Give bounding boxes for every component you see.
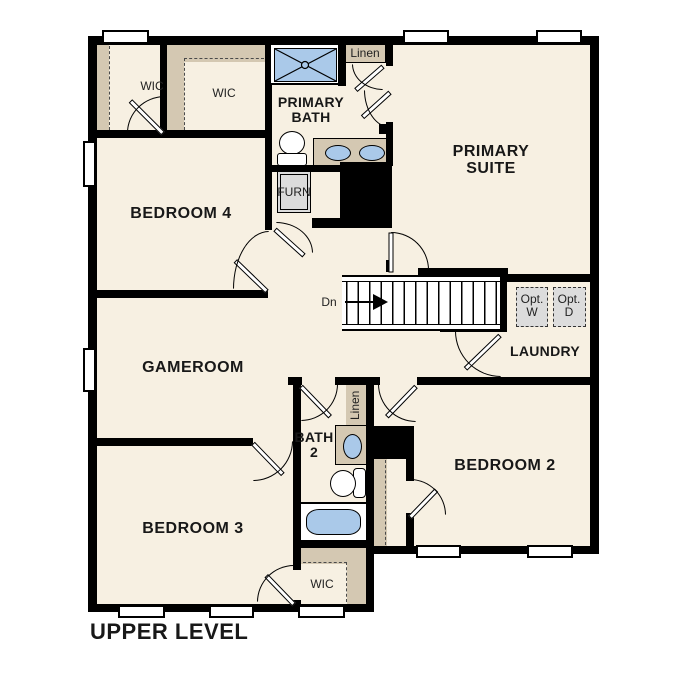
stairs-arrow-line xyxy=(345,301,375,303)
window-top-left xyxy=(102,30,149,44)
stairs-top-rail xyxy=(342,275,500,282)
wic1-rod-line xyxy=(109,46,110,130)
wall-lower-right xyxy=(366,540,374,612)
window-suite-1 xyxy=(403,30,449,44)
window-suite-2 xyxy=(536,30,582,44)
bedroom3-label: BEDROOM 3 xyxy=(133,520,253,537)
laundry-label: LAUNDRY xyxy=(505,344,585,359)
page-title: UPPER LEVEL xyxy=(90,620,330,644)
window-bedroom3-2 xyxy=(209,605,254,618)
wall-suite-left-b xyxy=(386,122,393,164)
stairs-treads xyxy=(346,282,498,324)
furnace-label: FURN xyxy=(275,186,313,199)
bath2-toilet-bowl xyxy=(330,470,356,497)
wic1-shelf xyxy=(97,45,109,130)
bedroom2-label: BEDROOM 2 xyxy=(444,457,566,474)
primary-sink-2 xyxy=(359,145,385,161)
linen2-label: Linen xyxy=(349,386,365,424)
primary-toilet-tank xyxy=(277,153,307,166)
wall-bath2-right xyxy=(366,380,374,540)
window-gameroom xyxy=(83,348,96,392)
wall-laundry-bottom xyxy=(417,377,598,385)
wall-b2closet-right-a xyxy=(406,453,414,481)
wall-outer-left xyxy=(88,36,97,612)
primary-bath-label: PRIMARY BATH xyxy=(270,95,352,125)
wic3-shelf-right xyxy=(347,548,366,604)
window-bedroom4 xyxy=(83,141,96,187)
bath2-sink xyxy=(343,434,362,459)
wall-wic-bottom xyxy=(88,130,272,138)
shower xyxy=(269,43,340,85)
stairs-arrow-head xyxy=(373,294,388,310)
window-bedroom2-2 xyxy=(527,545,573,558)
window-bedroom3-1 xyxy=(118,605,165,618)
wall-outer-right xyxy=(590,36,599,554)
window-bedroom2-1 xyxy=(416,545,461,558)
wall-bath2-bottom xyxy=(293,540,374,548)
stairs-bottom-rail xyxy=(342,324,500,331)
wall-bedroom4-gameroom xyxy=(88,290,268,298)
optional-dryer-label: Opt. D xyxy=(555,293,583,319)
bathtub xyxy=(306,509,361,535)
wall-suite-left-a xyxy=(386,36,393,66)
gameroom-label: GAMEROOM xyxy=(133,359,253,376)
wic2-label: WIC xyxy=(202,87,246,100)
wic3-label: WIC xyxy=(300,578,344,591)
primary-suite-label: PRIMARY SUITE xyxy=(430,143,552,178)
primary-toilet-bowl xyxy=(279,131,305,155)
floor-plan: Dn FURN Opt. W Opt. D xyxy=(0,0,687,687)
window-wic3 xyxy=(298,605,345,618)
wall-bedroom3-top xyxy=(88,438,253,446)
wic1-label: WIC xyxy=(130,80,174,93)
linen1-label: Linen xyxy=(345,47,385,60)
bath2-label: BATH 2 xyxy=(291,430,337,460)
stairs-down-label: Dn xyxy=(318,296,340,309)
chase-primary xyxy=(340,162,392,228)
primary-sink-1 xyxy=(325,145,351,161)
optional-washer-label: Opt. W xyxy=(518,293,546,319)
wall-laundry-top xyxy=(505,274,591,282)
bedroom2-closet-rod-line xyxy=(385,460,386,545)
staircase xyxy=(342,275,500,331)
bedroom4-label: BEDROOM 4 xyxy=(120,205,242,222)
